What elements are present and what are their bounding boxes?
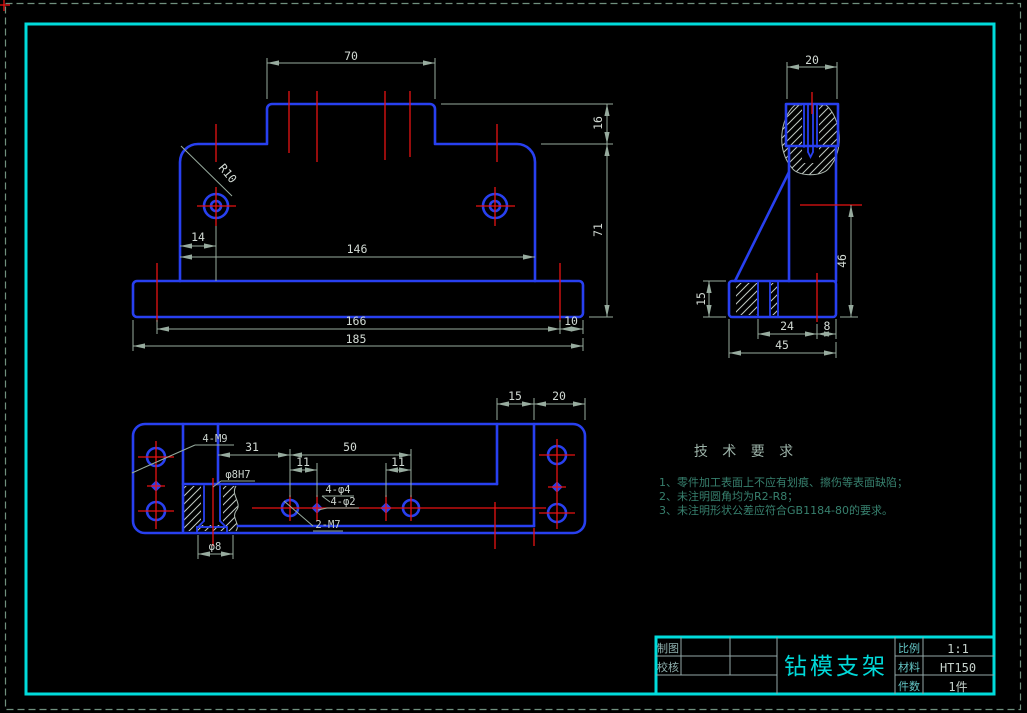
dim-side-edge-offset: 8	[824, 319, 831, 333]
drafter-label: 制图	[657, 642, 679, 655]
dim-front-boss-width: 70	[344, 49, 358, 63]
paper-border	[0, 0, 1021, 710]
dim-bottom-pin-offset-right: 11	[391, 455, 405, 469]
scale-value: 1:1	[947, 642, 969, 656]
dim-side-base-depth: 45	[775, 338, 789, 352]
scale-label: 比例	[898, 641, 920, 655]
dim-front-edge-offset: 10	[564, 314, 578, 328]
dim-front-fillet-radius: R10	[216, 161, 240, 186]
dim-front-boss-height: 16	[591, 116, 605, 130]
checker-label: 校核	[657, 660, 679, 674]
dim-side-boss-width: 20	[805, 53, 819, 67]
dim-front-body-height: 71	[591, 223, 605, 237]
title-block: 制图 校核 钻模支架 比例 1:1 材料 HT150 件数 1件	[656, 637, 994, 694]
dim-front-hole-spacing: 166	[346, 314, 367, 328]
dim-bottom-hole-offset: 31	[245, 440, 259, 454]
tech-requirements: 技 术 要 求 1、零件加工表面上不应有划痕、擦伤等表面缺陷； 2、未注明圆角均…	[659, 444, 908, 517]
dim-bottom-wall-inset: 15	[508, 389, 522, 403]
dim-bottom-flange-width: 20	[552, 389, 566, 403]
tech-requirement-item-2: 2、未注明圆角均为R2-R8；	[659, 489, 798, 503]
paper-limit-dashed-border	[6, 4, 1021, 710]
dim-bottom-hole-spacing: 50	[343, 440, 357, 454]
dim-front-body-width: 146	[347, 242, 368, 256]
label-pin-holes-top: 4-φ4	[325, 484, 350, 496]
label-pin-holes-bottom: 4-φ2	[330, 496, 355, 508]
material-value: HT150	[940, 661, 976, 675]
label-corner-thread-holes: 4-M9	[202, 433, 227, 445]
part-name: 钻模支架	[784, 654, 888, 680]
dim-side-base-height: 15	[694, 292, 708, 306]
dim-bottom-pin-offset-left: 11	[296, 455, 310, 469]
dim-front-base-width: 185	[346, 332, 367, 346]
side-view: 20 46 15 24 8 45	[694, 53, 862, 358]
tech-requirement-item-3: 3、未注明形状公差应符合GB1184-80的要求。	[659, 503, 893, 517]
dim-side-wall-height: 46	[835, 254, 849, 268]
quantity-label: 件数	[898, 680, 920, 693]
drawing-sheet: 70 16 71 146 14 166 10 185 R10	[0, 0, 1027, 713]
label-counterbore: φ8	[209, 541, 222, 553]
front-view-outline	[133, 104, 583, 317]
drawing-frame	[26, 24, 994, 694]
tech-requirements-title: 技 术 要 求	[694, 444, 798, 460]
dim-side-hole-offset: 24	[780, 319, 794, 333]
front-view: 70 16 71 146 14 166 10 185 R10	[133, 49, 613, 351]
quantity-value: 1件	[948, 680, 967, 694]
material-label: 材料	[898, 660, 920, 674]
dim-front-hole-offset: 14	[191, 230, 205, 244]
label-center-hole: φ8H7	[225, 469, 250, 481]
tech-requirement-item-1: 1、零件加工表面上不应有划痕、擦伤等表面缺陷；	[659, 475, 908, 489]
front-view-centerlines	[157, 91, 560, 322]
bottom-view: 15 20 31 50 11 11 4-M9 φ8H7 4-φ4 4-φ2 2-…	[132, 389, 585, 559]
cad-drawing-canvas[interactable]: 70 16 71 146 14 166 10 185 R10	[0, 0, 1027, 713]
label-thread-holes: 2-M7	[315, 519, 340, 531]
